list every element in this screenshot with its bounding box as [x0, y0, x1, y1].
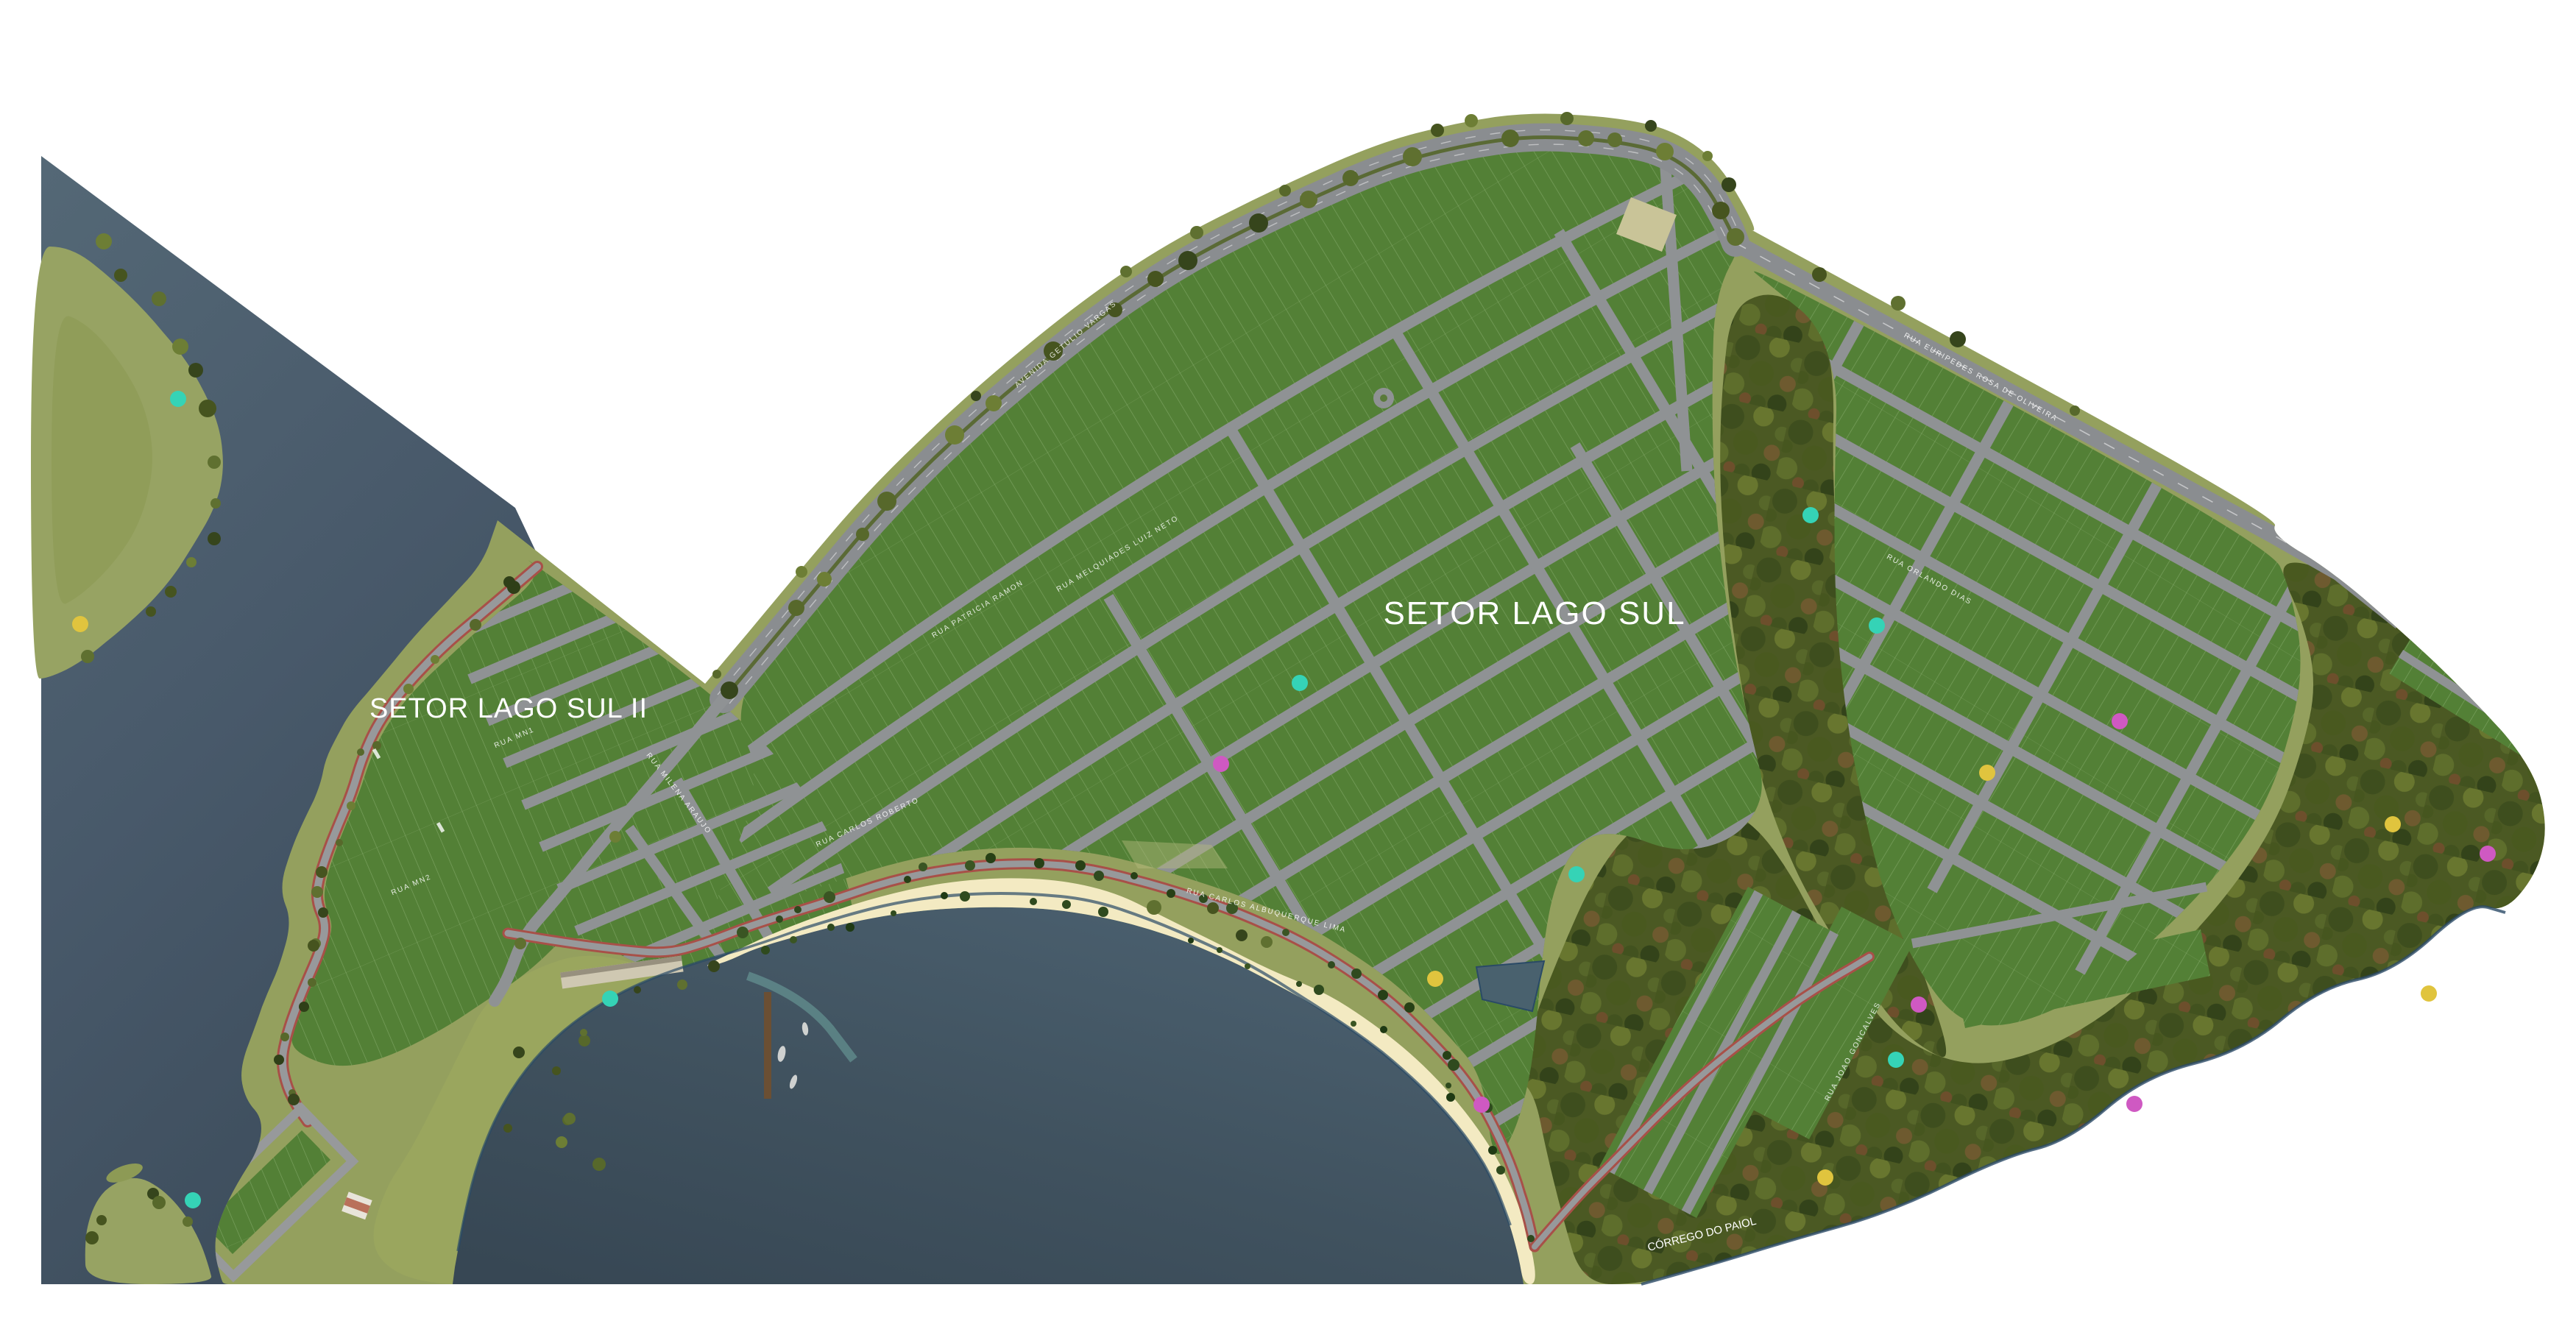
svg-text:SETOR LAGO SUL II: SETOR LAGO SUL II: [369, 693, 648, 724]
svg-text:SETOR LAGO SUL: SETOR LAGO SUL: [1383, 595, 1685, 631]
